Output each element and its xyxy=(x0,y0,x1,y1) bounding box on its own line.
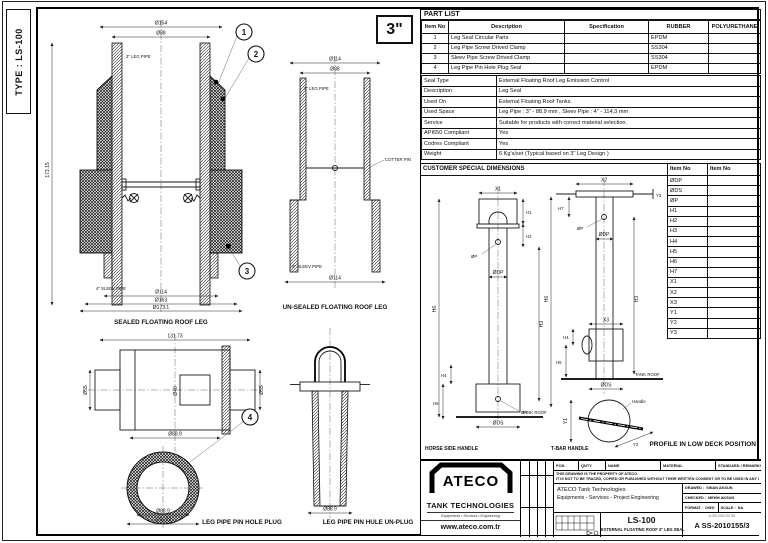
pl-header: POLYURETHANE xyxy=(709,21,761,34)
seal-info-value: External Floating Roof Leg Emission Cont… xyxy=(497,76,761,87)
dim-row: H3 xyxy=(668,226,761,236)
seal-info-row: Seal TypeExternal Floating Roof Leg Emis… xyxy=(422,76,761,87)
pl-cell: Leg Pipe Screw Drived Clamp xyxy=(449,44,565,54)
label-op-1: ØP xyxy=(471,254,477,259)
profile-note: PROFILE IN LOW DECK POSITION xyxy=(591,441,756,448)
title-block-main: POS. QNTY NAME MATERIAL STANDARD / REMAR… xyxy=(554,461,761,537)
item-no-header: Item No xyxy=(668,164,708,176)
label-sleev-pipe: 4" SLEEV PIPE xyxy=(96,286,126,291)
dim-value[interactable] xyxy=(708,277,761,287)
dim-h7: H7 xyxy=(558,206,564,211)
drawed-row: DRAWED : SINAN AKSUN xyxy=(683,484,761,494)
company-url[interactable]: www.ateco.com.tr xyxy=(421,520,520,531)
dim-h5-1: H5 xyxy=(433,401,439,406)
pl-cell: 3 xyxy=(422,54,449,64)
dim-d114-top: Ø114 xyxy=(329,57,341,63)
seal-info-row: DescriptionLeg Seal xyxy=(422,86,761,97)
dim-row: H6 xyxy=(668,257,761,267)
label-sleev-pipe-2: 4" SLEEV PIPE xyxy=(292,264,322,269)
dim-d88: Ø88 xyxy=(156,31,166,37)
dim-value[interactable] xyxy=(708,267,761,277)
dim-h4-2: H4 xyxy=(563,335,569,340)
logo-subtitle: TANK TECHNOLOGIES xyxy=(421,501,520,510)
type-label: TYPE : LS-100 xyxy=(14,28,24,96)
dim-row: H7 xyxy=(668,267,761,277)
dim-row: H2 xyxy=(668,216,761,226)
checked-row: CHECKED : MEHM AKSUN xyxy=(683,494,761,504)
drawing-sheet: TYPE : LS-100 3" Ø154 Ø88 3" LEG PIPE xyxy=(0,0,768,543)
dim-d114: Ø114 xyxy=(155,290,167,296)
balloon-3-label: 3 xyxy=(245,267,250,276)
plug-fitting-drawing: 131.73 Ø55 Ø40 Ø55 Ø88.9 xyxy=(83,334,265,453)
dim-odp-1: ØDP xyxy=(493,270,505,276)
item3-dot xyxy=(226,244,231,249)
pl-header: Specification xyxy=(565,21,649,34)
standard-header: STANDARD / REMARKS xyxy=(716,461,761,470)
dim-row: H5 xyxy=(668,247,761,257)
drawed-label: DRAWED : xyxy=(683,486,704,490)
seal-info-label: Weight xyxy=(422,149,497,160)
dim-code: X2 xyxy=(668,288,708,298)
dim-h5-2: H5 xyxy=(556,360,562,365)
pl-cell: Leg Seal Circular Parts xyxy=(449,34,565,44)
doc-number: A SS-2010155/3 xyxy=(683,521,761,530)
format-row: FORMAT : DWG SCALE : NA xyxy=(683,503,761,512)
part-row: 2 Leg Pipe Screw Drived Clamp SS304 xyxy=(422,44,761,54)
company-logo-panel: ATECO TANK TECHNOLOGIES Equipments • Ser… xyxy=(421,461,521,537)
logo-tagline: Equipments • Services • Engineering xyxy=(427,512,514,518)
dim-value[interactable] xyxy=(708,298,761,308)
dim-value[interactable] xyxy=(708,288,761,298)
dim-code: Y2 xyxy=(668,318,708,328)
dim-y3: Y3 xyxy=(656,193,662,198)
scale-label: SCALE : xyxy=(719,506,736,510)
dim-code: H1 xyxy=(668,206,708,216)
caption-plug: LEG PIPE PIN HOLE PLUG xyxy=(202,519,282,526)
dim-y1: Y1 xyxy=(563,418,569,424)
doc-title: LS-100 xyxy=(601,515,682,525)
pl-cell: SS304 xyxy=(649,44,709,54)
title-block-header: POS. QNTY NAME MATERIAL STANDARD / REMAR… xyxy=(554,461,761,471)
dim-row: Y2 xyxy=(668,318,761,328)
label-leg-pipe: 3" LEG PIPE xyxy=(126,54,151,59)
customer-profiles-drawing: X1 H1 H2 ØP ØDP H6 H3 xyxy=(421,169,666,459)
company-services: Equipments - Services - Project Engineer… xyxy=(557,495,679,501)
pl-cell: SS304 xyxy=(649,54,709,64)
label-leg-pipe-2: 3" LEG PIPE xyxy=(304,86,329,91)
doc-subtitle: EXTERNAL FLOATING ROOF 3" LEG SEAL xyxy=(601,527,682,532)
pl-cell: EPDM xyxy=(649,64,709,74)
seal-info-row: Codres CompliantYes xyxy=(422,139,761,150)
dim-h6-2: H6 xyxy=(544,296,550,303)
dim-d88: Ø88 xyxy=(330,67,340,73)
unplug-drawing: Ø88.9 LEG PIPE PIN HULE UN-PLUG xyxy=(290,328,413,526)
dim-value[interactable] xyxy=(708,196,761,206)
pl-cell: Leg Pipe Pin Hole Plug Seal xyxy=(449,64,565,74)
dim-h-total: 173.15 xyxy=(45,162,51,178)
dim-d55-right: Ø55 xyxy=(259,385,265,395)
pl-cell: 1 xyxy=(422,34,449,44)
seal-info-row: Weight6 Kg's/set (Typical based on 3" Le… xyxy=(422,149,761,160)
format-label: FORMAT : xyxy=(683,506,703,510)
seal-info-label: Used On xyxy=(422,97,497,108)
pl-cell xyxy=(565,54,649,64)
dim-h4-1: H4 xyxy=(441,373,447,378)
seal-info-label: Codres Compliant xyxy=(422,139,497,150)
pl-cell: 2 xyxy=(422,44,449,54)
seal-info-row: Used SpaceLeg Pipe : 3" - 88,9 mm , Slee… xyxy=(422,107,761,118)
qnty-header: QNTY xyxy=(579,461,606,470)
notice-line-2: IT IS NOT TO BE TRACED, COPIED OR PUBLIS… xyxy=(556,477,759,482)
seal-info: Seal TypeExternal Floating Roof Leg Emis… xyxy=(421,75,761,160)
caption-tbar-handle: T-BAR HANDLE xyxy=(551,446,589,452)
caption-unsealed: UN-SEALED FLOATING ROOF LEG xyxy=(283,304,388,311)
format-value: DWG xyxy=(703,506,714,510)
dim-row: X3 xyxy=(668,298,761,308)
doc-number-cell: A-SS-2010 B7 55 A SS-2010155/3 xyxy=(683,513,761,537)
seal-info-label: Seal Type xyxy=(422,76,497,87)
dim-row: Y3 xyxy=(668,328,761,338)
ateco-logo-icon: ATECO xyxy=(425,461,517,495)
customer-dims-table: Item No Item No ØDP ØDS ØP H1 H2 H3 H4 H… xyxy=(667,163,761,339)
pos-header: POS. xyxy=(554,461,579,470)
checked-value: MEHM AKSUN xyxy=(706,496,734,500)
seal-info-label: API650 Compliant xyxy=(422,128,497,139)
part-row: 4 Leg Pipe Pin Hole Plug Seal EPDM xyxy=(422,64,761,74)
item-no-header: Item No xyxy=(708,164,761,176)
dim-value[interactable] xyxy=(708,328,761,338)
doc-stamp: A-SS-2010 B7 55 xyxy=(683,514,761,518)
dim-d889: Ø88.9 xyxy=(168,432,182,438)
pl-cell: 4 xyxy=(422,64,449,74)
right-panel: PART LIST Item No Description Specificat… xyxy=(420,9,760,535)
dim-code: Y3 xyxy=(668,328,708,338)
projection-symbol-icon xyxy=(594,531,598,535)
seal-info-value: Leg Seal xyxy=(497,86,761,97)
pl-header: Description xyxy=(449,21,565,34)
dim-value[interactable] xyxy=(708,237,761,247)
dim-ring-w: 131.73 xyxy=(155,518,171,524)
dim-h2: H2 xyxy=(526,234,532,239)
dim-value[interactable] xyxy=(708,247,761,257)
dim-row: ØDP xyxy=(668,176,761,186)
meta-cell: DRAWED : SINAN AKSUN CHECKED : MEHM AKSU… xyxy=(683,484,761,512)
label-cotter-pin: COTTER PIN xyxy=(385,157,411,162)
dim-ods-2: ØDS xyxy=(601,383,613,389)
seal-info-row: API650 CompliantYes xyxy=(422,128,761,139)
pl-cell xyxy=(565,64,649,74)
dim-value[interactable] xyxy=(708,257,761,267)
balloon-4-label: 4 xyxy=(248,413,253,422)
pl-header: Item No xyxy=(422,21,449,34)
dim-d55-left: Ø55 xyxy=(83,385,89,395)
dim-unplug-d: Ø88.9 xyxy=(323,507,337,513)
dim-ring-d: Ø88.9 xyxy=(156,509,170,515)
pl-cell xyxy=(709,64,761,74)
title-block: ATECO TANK TECHNOLOGIES Equipments • Ser… xyxy=(421,459,761,535)
dim-x3: X3 xyxy=(603,318,609,324)
seal-info-value: 6 Kg's/set (Typical based on 3" Leg Desi… xyxy=(497,149,761,160)
dim-value[interactable] xyxy=(708,226,761,236)
dim-code: H7 xyxy=(668,267,708,277)
doc-title-cell: LS-100 EXTERNAL FLOATING ROOF 3" LEG SEA… xyxy=(601,513,683,537)
dim-d154: Ø154 xyxy=(155,21,167,27)
caption-sealed: SEALED FLOATING ROOF LEG xyxy=(114,319,208,326)
dim-code: ØDS xyxy=(668,186,708,196)
unsealed-leg-drawing: Ø114 Ø88 3" LEG PIPE COTTER PIN 4" SLEEV… xyxy=(283,56,411,311)
material-header: MATERIAL xyxy=(661,461,716,470)
dim-d163: Ø163 xyxy=(155,298,167,304)
dim-d40: Ø40 xyxy=(173,386,179,396)
pl-cell: EPDM xyxy=(649,34,709,44)
balloon-1-label: 1 xyxy=(242,28,247,37)
company-name: ATECO Tank Technologies xyxy=(557,487,679,493)
seal-info-row: Used OnExternal Floating Roof Tanks. xyxy=(422,97,761,108)
seal-info-label: Description xyxy=(422,86,497,97)
pl-cell xyxy=(709,34,761,44)
dim-code: ØDP xyxy=(668,176,708,186)
seal-info-value: Yes xyxy=(497,139,761,150)
sealed-leg-drawing: Ø154 Ø88 3" LEG PIPE xyxy=(45,20,264,326)
dim-d114-bottom: Ø114 xyxy=(329,276,341,282)
label-handle: Handle xyxy=(632,399,646,404)
dim-code: H2 xyxy=(668,216,708,226)
horse-side-handle-profile: X1 H1 H2 ØP ØDP H6 H3 xyxy=(425,187,547,453)
dim-ods-1: ØDS xyxy=(493,421,505,427)
label-tank-roof-1: TANK ROOF xyxy=(522,410,547,415)
dim-code: X3 xyxy=(668,298,708,308)
type-label-box: TYPE : LS-100 xyxy=(6,9,31,114)
label-op-3: ØP xyxy=(577,226,583,231)
dim-value[interactable] xyxy=(708,176,761,186)
pl-cell xyxy=(709,44,761,54)
dim-code: H4 xyxy=(668,237,708,247)
left-drawing-area: Ø154 Ø88 3" LEG PIPE xyxy=(38,10,420,535)
mini-grid-cell xyxy=(554,513,601,537)
plug-ring-drawing: 4 Ø88.9 131.73 LEG PIPE PIN HOLE PLUG xyxy=(121,409,282,530)
pl-cell xyxy=(565,44,649,54)
seal-info-value: Suitable for products with correct mater… xyxy=(497,118,761,129)
dim-h3-2: H3 xyxy=(634,296,640,303)
part-row: 1 Leg Seal Circular Parts EPDM xyxy=(422,34,761,44)
caption-horse-side-handle: HORSE SIDE HANDLE xyxy=(425,446,479,452)
pl-cell: Sleev Pipe Screw Drived Clamp xyxy=(449,54,565,64)
caption-unplug: LEG PIPE PIN HULE UN-PLUG xyxy=(323,519,414,526)
dim-h3-1: H3 xyxy=(539,321,545,328)
dim-value[interactable] xyxy=(708,186,761,196)
seal-info-row: ServiceSuitable for products with correc… xyxy=(422,118,761,129)
pl-cell xyxy=(565,34,649,44)
dim-code: Y1 xyxy=(668,308,708,318)
dim-code: ØP xyxy=(668,196,708,206)
dim-code: H6 xyxy=(668,257,708,267)
dim-value[interactable] xyxy=(708,308,761,318)
dim-value[interactable] xyxy=(708,206,761,216)
seal-info-label: Used Space xyxy=(422,107,497,118)
dim-code: X1 xyxy=(668,277,708,287)
item1-dot xyxy=(214,80,219,85)
balloon-2-label: 2 xyxy=(254,50,259,59)
dim-row: ØDS xyxy=(668,186,761,196)
dim-value[interactable] xyxy=(708,216,761,226)
dim-row: H4 xyxy=(668,237,761,247)
pl-cell xyxy=(709,54,761,64)
dim-row: Y1 xyxy=(668,308,761,318)
revision-strip xyxy=(521,461,554,537)
part-row: 3 Sleev Pipe Screw Drived Clamp SS304 xyxy=(422,54,761,64)
checked-label: CHECKED : xyxy=(683,496,706,500)
part-list: PART LIST Item No Description Specificat… xyxy=(421,9,761,74)
logo-name: ATECO xyxy=(442,473,498,490)
drawed-value: SINAN AKSUN xyxy=(704,486,732,490)
pl-header: RUBBER xyxy=(649,21,709,34)
dim-value[interactable] xyxy=(708,318,761,328)
dim-row: X1 xyxy=(668,277,761,287)
dim-x2: X2 xyxy=(601,178,607,184)
tbar-handle-profile: X2 Y3 H7 ØP ØDP H6 H3 X3 xyxy=(544,178,663,408)
company-cell: ATECO Tank Technologies Equipments - Ser… xyxy=(554,484,683,512)
dim-x1: X1 xyxy=(495,187,501,193)
scale-value: NA xyxy=(736,506,743,510)
dim-row: X2 xyxy=(668,288,761,298)
seal-info-value: Yes xyxy=(497,128,761,139)
seal-info-value: Leg Pipe : 3" - 88,9 mm , Sleev Pipe : 4… xyxy=(497,107,761,118)
dim-h1: H1 xyxy=(526,210,532,215)
seal-info-value: External Floating Roof Tanks. xyxy=(497,97,761,108)
revision-grid-icon xyxy=(554,513,601,536)
dim-d173: Ø173.1 xyxy=(153,305,170,311)
dim-odp-2: ØDP xyxy=(599,232,611,238)
name-header: NAME xyxy=(606,461,661,470)
dim-code: H3 xyxy=(668,226,708,236)
dim-row: H1 xyxy=(668,206,761,216)
dim-row: ØP xyxy=(668,196,761,206)
part-list-title: PART LIST xyxy=(421,9,761,20)
label-tank-roof-2: TANK ROOF xyxy=(635,372,660,377)
dim-code: H5 xyxy=(668,247,708,257)
property-notice: THIS DRAWING IS THE PROPERTY OF ATECO. I… xyxy=(554,471,761,484)
seal-info-label: Service xyxy=(422,118,497,129)
dim-h6-1: H6 xyxy=(432,306,438,313)
